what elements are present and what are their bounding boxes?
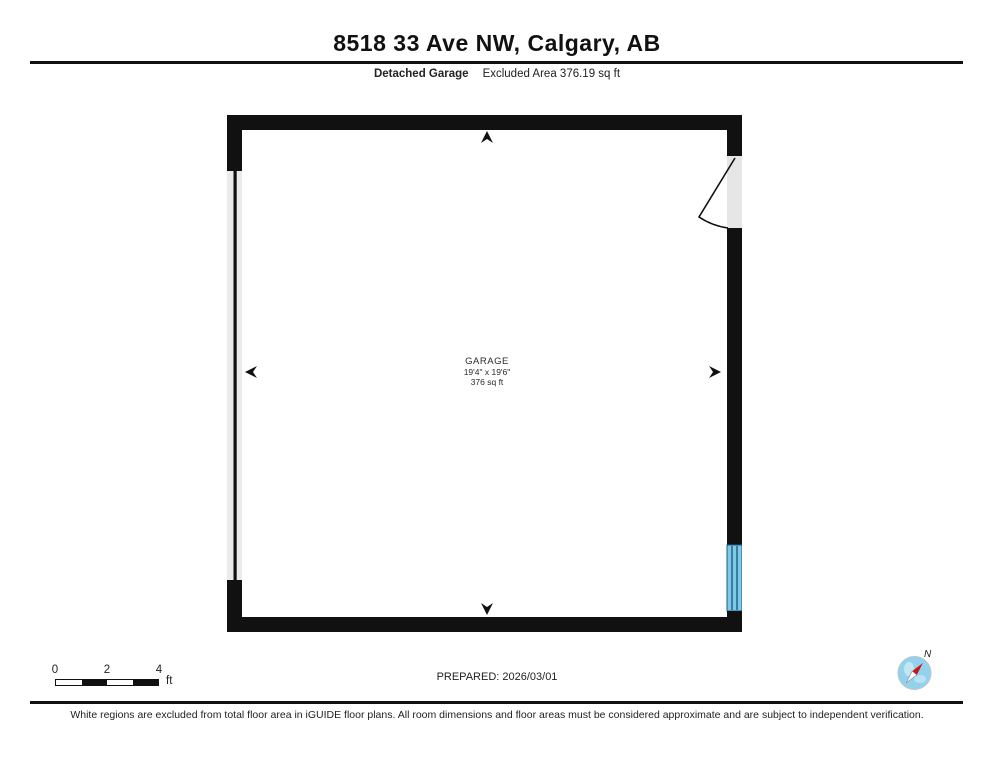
compass-icon: N bbox=[894, 645, 940, 695]
room-dimensions-label: 19'4" x 19'6" bbox=[464, 367, 511, 377]
footer-divider bbox=[30, 701, 963, 704]
page-title: 8518 33 Ave NW, Calgary, AB bbox=[0, 30, 994, 57]
wall-right-upper bbox=[727, 115, 742, 156]
floor-subtitle: Detached GarageExcluded Area 376.19 sq f… bbox=[0, 68, 994, 80]
prepared-date: PREPARED: 2026/03/01 bbox=[0, 671, 994, 683]
disclaimer-text: White regions are excluded from total fl… bbox=[0, 709, 994, 721]
wall-right-lower bbox=[727, 611, 742, 632]
garage-door bbox=[227, 171, 242, 580]
wall-right-middle bbox=[727, 228, 742, 545]
wall-bottom bbox=[227, 617, 742, 632]
wall-left-upper bbox=[227, 115, 242, 171]
window bbox=[727, 545, 742, 611]
compass-north-label: N bbox=[924, 649, 932, 660]
excluded-area-label: Excluded Area 376.19 sq ft bbox=[483, 68, 620, 80]
header-divider bbox=[30, 61, 963, 64]
wall-left-lower bbox=[227, 580, 242, 632]
floor-name-label: Detached Garage bbox=[374, 68, 469, 80]
room-name-label: GARAGE bbox=[465, 356, 509, 367]
wall-top bbox=[227, 115, 742, 130]
garage-floorplan: GARAGE 19'4" x 19'6" 376 sq ft bbox=[227, 115, 742, 632]
globe-landmass bbox=[914, 675, 926, 683]
floorplan-page: 8518 33 Ave NW, Calgary, AB Detached Gar… bbox=[0, 0, 994, 768]
room-area-label: 376 sq ft bbox=[471, 377, 504, 387]
